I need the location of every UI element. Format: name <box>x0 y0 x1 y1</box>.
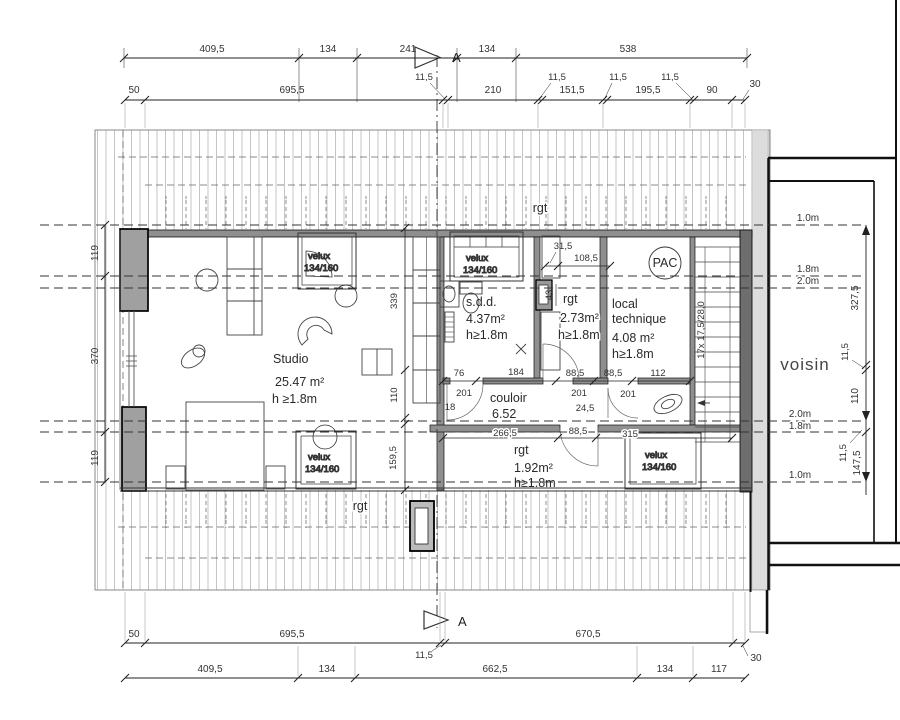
height-label-20-top: 2.0m <box>797 276 819 287</box>
dim: 695,5 <box>279 629 304 640</box>
velux-size: 134/160 <box>305 464 339 475</box>
room-rgt-back-area: 1.92m² <box>514 461 553 475</box>
dim: 110 <box>389 387 400 402</box>
velux-label: velux <box>308 251 330 262</box>
height-label-20-bottom: 2.0m <box>789 409 811 420</box>
section-letter-top: A <box>452 50 461 65</box>
room-sdd-height: h≥1.8m <box>466 328 508 342</box>
section-letter-bottom: A <box>458 614 467 629</box>
dim-door: 24,5 <box>576 403 595 414</box>
height-label-10-bottom: 1.0m <box>789 470 811 481</box>
velux-size: 134/160 <box>304 263 338 274</box>
neighbor-structure: voisin <box>750 0 900 634</box>
section-marker-bottom <box>424 611 448 629</box>
room-rgt-small-height: h≥1.8m <box>558 328 600 342</box>
dim: 210 <box>485 85 502 96</box>
dim-offset: 11,5 <box>415 72 433 83</box>
dim: 110 <box>850 388 861 404</box>
height-label-10-top: 1.0m <box>797 213 819 224</box>
dim-offset: 11,5 <box>548 72 566 83</box>
dim: 151,5 <box>559 85 584 96</box>
dim: 184 <box>508 367 524 378</box>
room-local-line2: technique <box>612 312 666 326</box>
dim: 134 <box>320 44 337 55</box>
velux-size: 134/160 <box>463 265 497 276</box>
dim: 50 <box>128 629 140 640</box>
velux-size: 134/160 <box>642 462 676 473</box>
room-local-line1: local <box>612 297 638 311</box>
dim: 195,5 <box>635 85 660 96</box>
dim: 76 <box>454 368 465 379</box>
height-label-18-top: 1.8m <box>797 264 819 275</box>
dim: 134 <box>479 44 496 55</box>
dim-door: 201 <box>620 389 636 400</box>
dim: 370 <box>90 347 101 364</box>
dim-offset: 11,5 <box>661 72 679 83</box>
dim-offset: 11,5 <box>609 72 627 83</box>
dim: 241 <box>400 44 417 55</box>
room-couloir-area: 6.52 <box>492 407 516 421</box>
section-marker-top <box>415 47 440 68</box>
room-sdd-area: 4.37m² <box>466 312 505 326</box>
room-couloir-name: couloir <box>490 391 527 405</box>
room-rgt-small-area: 2.73m² <box>560 311 599 325</box>
dim: 50 <box>128 85 140 96</box>
dim: 662,5 <box>482 664 507 675</box>
room-sdd-name: s.d.d. <box>466 295 497 309</box>
dim: 670,5 <box>575 629 600 640</box>
dim: 119 <box>90 450 101 466</box>
dim: 30 <box>749 79 761 90</box>
dim: 119 <box>90 245 101 261</box>
dim: 695,5 <box>279 85 304 96</box>
pac-label: PAC <box>653 256 678 270</box>
dim: 134 <box>657 664 674 675</box>
room-local-height: h≥1.8m <box>612 347 654 361</box>
dim-offset: 11,5 <box>415 650 433 661</box>
room-local-area: 4.08 m² <box>612 331 654 345</box>
dim: 30 <box>750 653 762 664</box>
dim: 159,5 <box>388 446 399 470</box>
storage-top-label: rgt <box>533 201 548 215</box>
dim: 31,5 <box>554 241 573 252</box>
stair-note: 17x 17,5/28,0 <box>696 301 707 359</box>
dim: 88,5 <box>604 368 623 379</box>
room-rgt-back-height: h≥1.8m <box>514 476 556 490</box>
dim: 134 <box>319 664 336 675</box>
dim: 409,5 <box>199 44 224 55</box>
velux-label: velux <box>645 450 667 461</box>
room-rgt-back-name: rgt <box>514 443 529 457</box>
room-rgt-small-name: rgt <box>563 292 578 306</box>
storage-bottom-label: rgt <box>353 499 368 513</box>
dim: 90 <box>706 85 718 96</box>
dim: 538 <box>620 44 637 55</box>
dim-door: 18 <box>445 402 456 413</box>
floor-plan-page: voisin 17x 17,5/28,0 <box>0 0 900 720</box>
dim: 108,5 <box>574 253 598 264</box>
velux-label: velux <box>466 253 488 264</box>
dim-offset: 11,5 <box>838 444 849 462</box>
dim: 112 <box>650 368 665 379</box>
room-studio-area: 25.47 m² <box>275 375 324 389</box>
dim: 327,5 <box>850 285 861 310</box>
dim-shaft: 43 <box>544 290 555 301</box>
dim-door: 201 <box>571 388 587 399</box>
neighbor-label: voisin <box>780 355 829 374</box>
dim: 117 <box>711 664 727 675</box>
dim: 339 <box>389 293 400 309</box>
floor-plan-drawing: voisin 17x 17,5/28,0 <box>0 0 900 720</box>
dimensions-top: 409,5 134 241 134 538 50 695,5 210 151,5… <box>120 44 761 128</box>
dim: 88,5 <box>566 368 585 379</box>
room-studio-name: Studio <box>273 352 308 366</box>
room-studio-height: h ≥1.8m <box>272 392 317 406</box>
dim: 315 <box>622 429 638 440</box>
dim-offset: 11,5 <box>840 343 851 361</box>
dim: 147,5 <box>852 450 863 475</box>
dimensions-bottom: 50 695,5 670,5 30 11,5 409,5 134 662,5 1… <box>121 592 762 682</box>
dim: 409,5 <box>197 664 222 675</box>
height-label-18-bottom: 1.8m <box>789 421 811 432</box>
dim-door: 201 <box>456 388 472 399</box>
roof-height-labels: 1.0m 1.8m 2.0m 2.0m 1.8m 1.0m <box>789 213 819 481</box>
dim: 266,5 <box>493 428 517 439</box>
dimensions-right: 327,5 11,5 110 11,5 147,5 <box>838 225 870 495</box>
dim: 88,5 <box>569 426 588 437</box>
velux-label: velux <box>308 452 330 463</box>
